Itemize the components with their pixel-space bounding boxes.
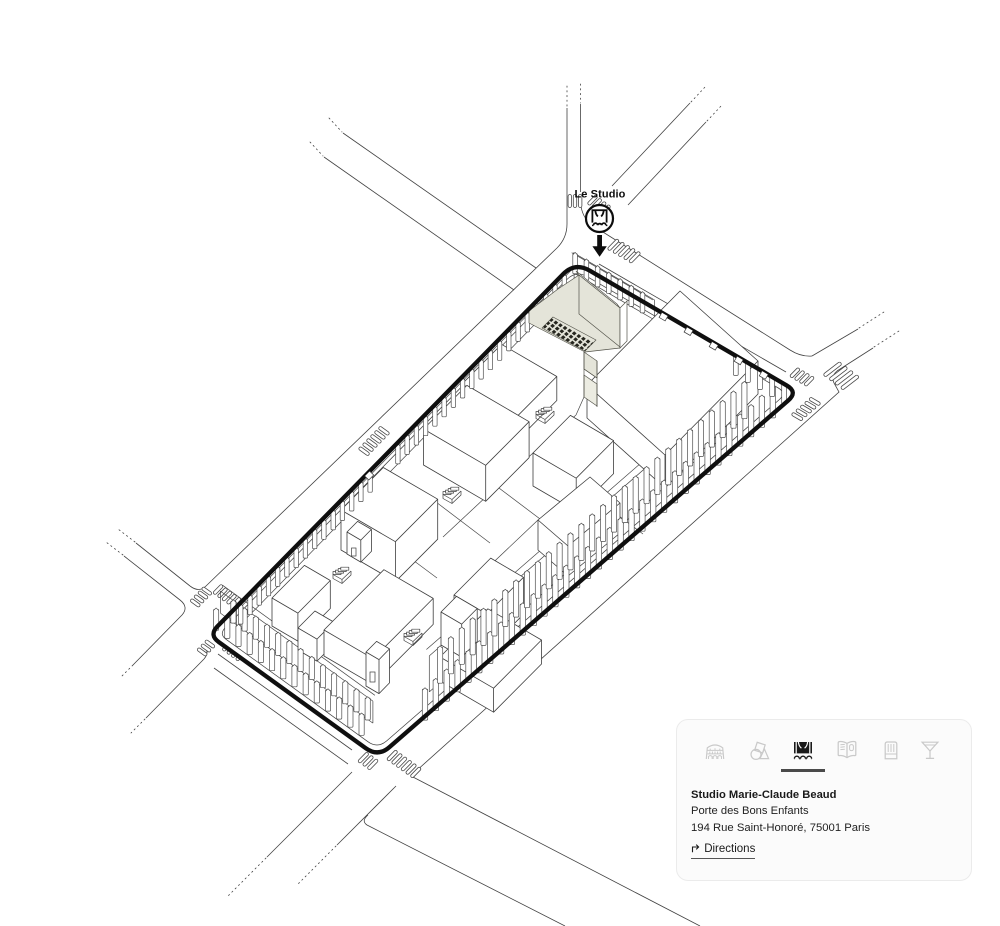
svg-text:Le Studio: Le Studio: [574, 189, 625, 201]
